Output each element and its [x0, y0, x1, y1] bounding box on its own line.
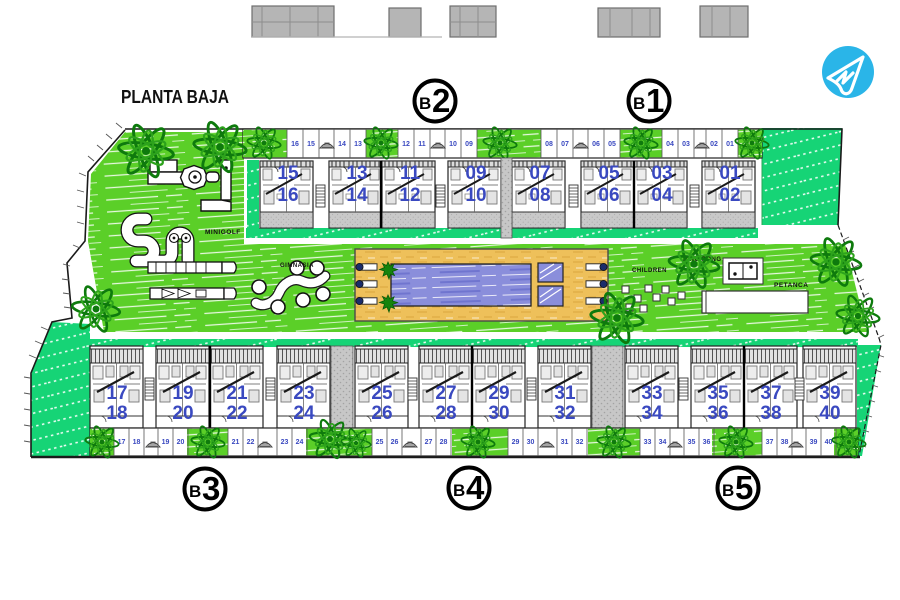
- svg-text:13: 13: [346, 163, 367, 184]
- svg-text:12: 12: [402, 141, 410, 148]
- svg-text:01: 01: [726, 141, 734, 148]
- svg-text:B: B: [453, 481, 465, 500]
- svg-text:14: 14: [346, 185, 368, 206]
- svg-text:36: 36: [703, 439, 711, 446]
- svg-text:06: 06: [598, 185, 619, 206]
- svg-text:07: 07: [561, 141, 569, 148]
- svg-text:03: 03: [651, 163, 672, 184]
- svg-text:08: 08: [545, 141, 553, 148]
- svg-text:21: 21: [226, 383, 248, 404]
- svg-text:09: 09: [465, 163, 486, 184]
- svg-text:32: 32: [554, 403, 575, 424]
- svg-text:28: 28: [435, 403, 456, 424]
- svg-text:16: 16: [291, 141, 299, 148]
- svg-text:B: B: [722, 481, 734, 500]
- svg-text:MINIGOLF: MINIGOLF: [205, 229, 241, 236]
- svg-text:5: 5: [735, 469, 753, 506]
- svg-text:40: 40: [825, 439, 833, 446]
- svg-text:03: 03: [682, 141, 690, 148]
- svg-text:19: 19: [172, 383, 193, 404]
- svg-text:PETANCA: PETANCA: [774, 282, 808, 289]
- svg-text:11: 11: [400, 163, 421, 184]
- svg-text:32: 32: [576, 439, 584, 446]
- svg-text:15: 15: [277, 163, 299, 184]
- svg-text:21: 21: [232, 439, 240, 446]
- svg-text:20: 20: [177, 439, 185, 446]
- svg-text:04: 04: [651, 185, 673, 206]
- svg-text:27: 27: [425, 439, 433, 446]
- svg-text:PLANTA BAJA: PLANTA BAJA: [121, 87, 229, 107]
- svg-text:02: 02: [710, 141, 718, 148]
- svg-text:29: 29: [488, 383, 509, 404]
- svg-text:CHILDREN: CHILDREN: [632, 268, 667, 274]
- svg-text:34: 34: [641, 403, 663, 424]
- svg-text:30: 30: [488, 403, 509, 424]
- svg-text:07: 07: [529, 163, 550, 184]
- svg-text:12: 12: [399, 185, 420, 206]
- svg-text:01: 01: [719, 163, 741, 184]
- svg-text:38: 38: [781, 439, 789, 446]
- svg-text:17: 17: [106, 383, 127, 404]
- svg-text:2: 2: [432, 82, 450, 119]
- svg-text:14: 14: [338, 141, 346, 148]
- svg-text:05: 05: [598, 163, 620, 184]
- svg-text:B: B: [633, 94, 645, 113]
- svg-text:15: 15: [307, 141, 315, 148]
- svg-text:39: 39: [819, 383, 840, 404]
- svg-text:09: 09: [465, 141, 473, 148]
- svg-text:26: 26: [371, 403, 392, 424]
- svg-text:10: 10: [449, 141, 457, 148]
- svg-text:29: 29: [512, 439, 520, 446]
- svg-text:19: 19: [162, 439, 170, 446]
- svg-text:37: 37: [766, 439, 774, 446]
- svg-text:05: 05: [608, 141, 616, 148]
- svg-text:24: 24: [293, 403, 315, 424]
- svg-text:11: 11: [418, 141, 426, 148]
- svg-text:22: 22: [247, 439, 255, 446]
- svg-text:30: 30: [527, 439, 535, 446]
- svg-text:B: B: [419, 94, 431, 113]
- svg-text:27: 27: [435, 383, 456, 404]
- svg-text:08: 08: [529, 185, 550, 206]
- svg-text:31: 31: [561, 439, 569, 446]
- svg-text:16: 16: [277, 185, 298, 206]
- svg-text:4: 4: [466, 469, 485, 506]
- svg-text:3: 3: [202, 470, 220, 507]
- svg-text:33: 33: [644, 439, 652, 446]
- svg-text:04: 04: [666, 141, 674, 148]
- svg-text:31: 31: [554, 383, 576, 404]
- svg-text:22: 22: [226, 403, 247, 424]
- svg-text:23: 23: [281, 439, 289, 446]
- svg-text:35: 35: [707, 383, 729, 404]
- svg-text:33: 33: [641, 383, 662, 404]
- svg-text:38: 38: [760, 403, 781, 424]
- svg-text:13: 13: [354, 141, 362, 148]
- svg-text:02: 02: [719, 185, 740, 206]
- svg-text:GIMNASIA: GIMNASIA: [280, 263, 314, 269]
- svg-text:40: 40: [819, 403, 840, 424]
- svg-text:26: 26: [391, 439, 399, 446]
- svg-text:23: 23: [293, 383, 314, 404]
- svg-text:18: 18: [106, 403, 127, 424]
- svg-text:18: 18: [133, 439, 141, 446]
- svg-text:06: 06: [592, 141, 600, 148]
- svg-text:20: 20: [172, 403, 193, 424]
- svg-text:25: 25: [376, 439, 384, 446]
- svg-text:B: B: [189, 482, 201, 501]
- svg-text:35: 35: [688, 439, 696, 446]
- svg-text:37: 37: [760, 383, 781, 404]
- svg-text:28: 28: [440, 439, 448, 446]
- svg-text:34: 34: [659, 439, 667, 446]
- svg-text:1: 1: [646, 82, 664, 119]
- svg-text:25: 25: [371, 383, 393, 404]
- svg-text:36: 36: [707, 403, 728, 424]
- svg-text:24: 24: [296, 439, 304, 446]
- svg-text:39: 39: [810, 439, 818, 446]
- svg-text:10: 10: [465, 185, 486, 206]
